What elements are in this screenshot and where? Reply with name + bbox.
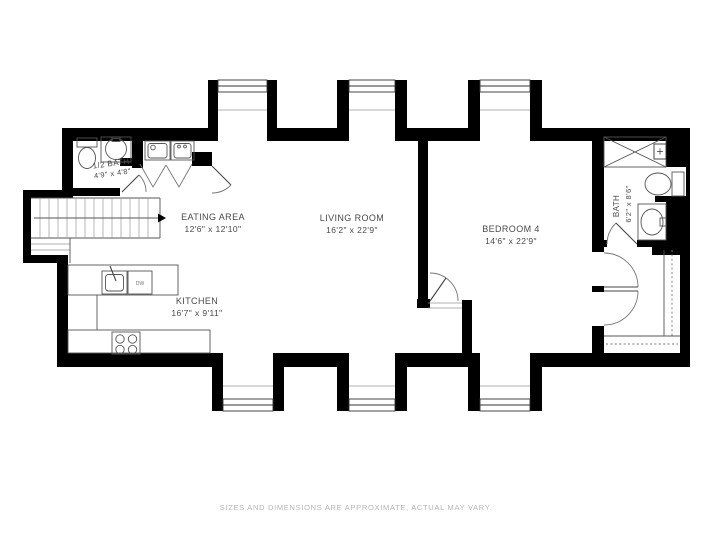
bath-dims: 6'2" x 8'6": [624, 185, 633, 222]
room-labels: 1/2 BATH 4'9" x 4'8" EATING AREA 12'6" x…: [92, 157, 633, 318]
kitchen-sink: [102, 266, 127, 294]
bath-door: [607, 223, 637, 244]
kitchen-dims: 16'7" x 9'11": [171, 308, 222, 318]
floor-plan: DW: [0, 0, 711, 533]
living-room-dims: 16'2" x 22'9": [326, 225, 378, 235]
half-bath-door: [122, 175, 139, 192]
interior-walls: [62, 140, 686, 353]
floor-plan-canvas: DW: [0, 0, 711, 533]
exterior-walls: [23, 80, 690, 411]
stair-arrow-icon: [158, 214, 166, 223]
bedroom-door: [428, 273, 462, 308]
bifold-door-left: [140, 164, 166, 187]
stove: [112, 332, 140, 354]
bedroom-label: BEDROOM 4: [482, 224, 540, 234]
disclaimer-text: SIZES AND DIMENSIONS ARE APPROXIMATE, AC…: [220, 503, 493, 512]
staircase: [31, 198, 166, 263]
bath-label: BATH: [612, 195, 621, 217]
bifold-door-right: [166, 164, 192, 187]
shower: [604, 137, 666, 167]
eating-area-label: EATING AREA: [181, 212, 245, 222]
eating-area-dims: 12'6" x 12'10": [185, 224, 242, 234]
washer: [171, 141, 194, 160]
closet-door-lower: [604, 291, 638, 325]
laundry-sink: [145, 141, 170, 160]
hall-door: [212, 166, 231, 193]
bedroom-dims: 14'6" x 22'9": [485, 236, 537, 246]
laundry-closet: [140, 141, 194, 187]
bay-windows: [218, 80, 530, 411]
vanity-sink: [638, 204, 666, 240]
closet-door-upper: [604, 253, 638, 287]
dishwasher: DW: [128, 271, 152, 294]
dishwasher-label: DW: [136, 281, 145, 287]
living-room-label: LIVING ROOM: [320, 213, 384, 223]
kitchen-label: KITCHEN: [176, 296, 218, 306]
half-bath-door-arc: [139, 175, 146, 192]
